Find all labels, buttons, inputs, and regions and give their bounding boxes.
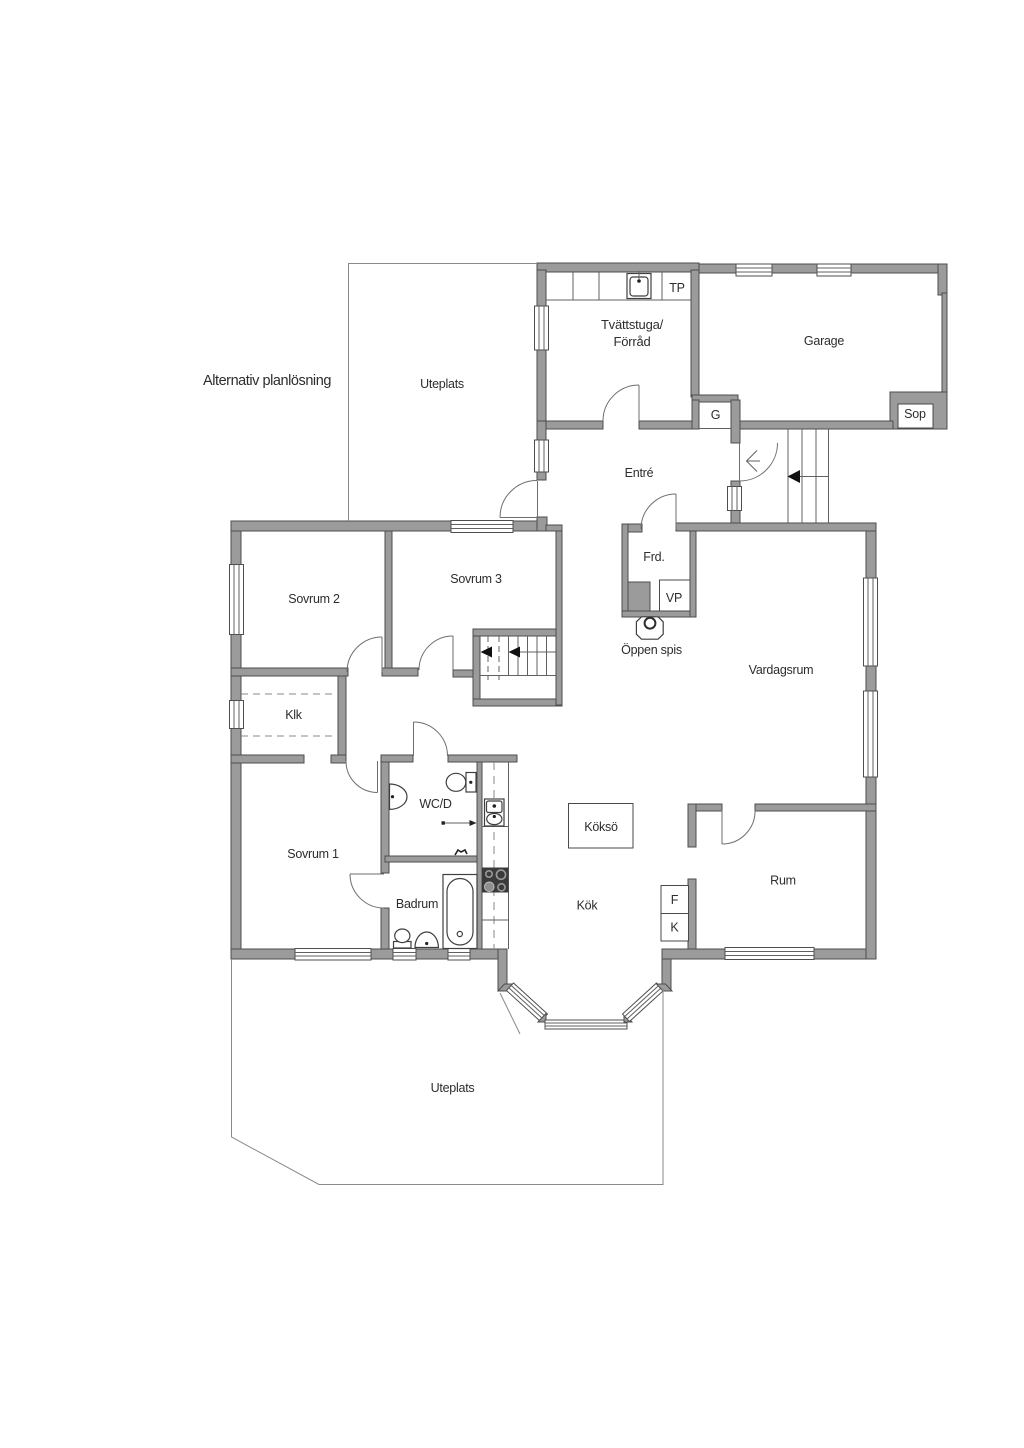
svg-text:Rum: Rum xyxy=(770,874,796,888)
svg-text:K: K xyxy=(670,921,679,935)
svg-text:WC/D: WC/D xyxy=(419,797,452,811)
svg-text:TP: TP xyxy=(669,281,685,295)
svg-text:Entré: Entré xyxy=(625,466,654,480)
svg-text:Sovrum 1: Sovrum 1 xyxy=(287,847,339,861)
svg-text:Tvättstuga/: Tvättstuga/ xyxy=(601,317,664,332)
svg-text:Öppen spis: Öppen spis xyxy=(621,643,682,657)
svg-text:Sop: Sop xyxy=(904,407,926,421)
svg-text:F: F xyxy=(671,893,679,907)
svg-text:Sovrum 3: Sovrum 3 xyxy=(450,572,502,586)
svg-text:Frd.: Frd. xyxy=(643,550,664,564)
svg-text:Vardagsrum: Vardagsrum xyxy=(749,663,814,677)
svg-text:Kök: Kök xyxy=(577,899,599,913)
svg-text:VP: VP xyxy=(666,591,682,605)
svg-text:G: G xyxy=(711,408,721,422)
svg-text:Alternativ planlösning: Alternativ planlösning xyxy=(203,373,331,389)
svg-text:Förråd: Förråd xyxy=(613,334,650,349)
svg-text:Uteplats: Uteplats xyxy=(431,1081,475,1095)
svg-text:Köksö: Köksö xyxy=(584,820,618,834)
svg-text:Garage: Garage xyxy=(804,334,844,348)
svg-text:Sovrum 2: Sovrum 2 xyxy=(288,592,340,606)
svg-text:Uteplats: Uteplats xyxy=(420,377,464,391)
svg-text:Klk: Klk xyxy=(285,708,303,722)
svg-text:Badrum: Badrum xyxy=(396,897,438,911)
